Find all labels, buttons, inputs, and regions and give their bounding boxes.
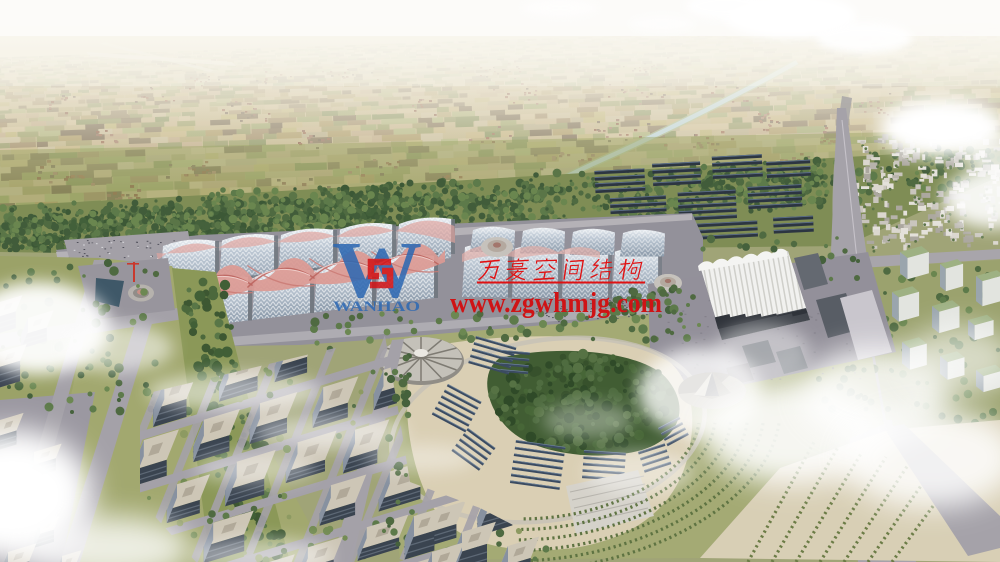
svg-text:WANHAO: WANHAO [333,299,420,315]
svg-text:www.zgwhmjg.com: www.zgwhmjg.com [450,288,662,319]
